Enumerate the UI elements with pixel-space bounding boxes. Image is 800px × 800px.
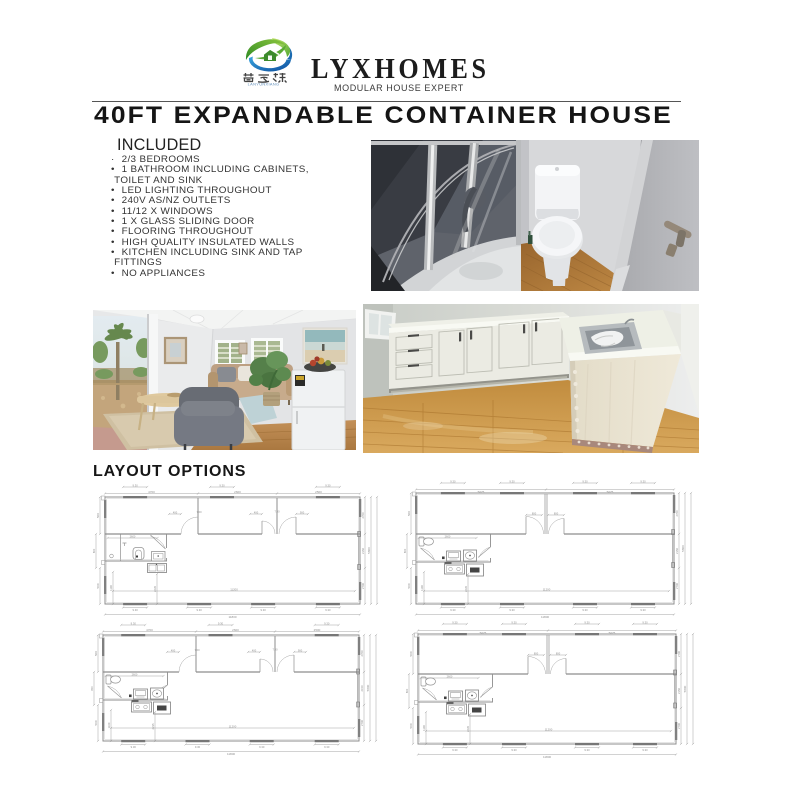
svg-text:2600: 2600 <box>447 674 453 678</box>
svg-text:2150: 2150 <box>675 548 679 554</box>
svg-text:2235: 2235 <box>464 586 468 592</box>
svg-text:11800: 11800 <box>541 615 549 618</box>
svg-text:9.30: 9.30 <box>132 608 138 612</box>
svg-text:9.30: 9.30 <box>509 479 515 483</box>
svg-text:400: 400 <box>252 648 257 652</box>
svg-text:9.30: 9.30 <box>195 745 201 749</box>
svg-text:2700: 2700 <box>361 512 365 518</box>
svg-text:2700: 2700 <box>677 651 681 657</box>
svg-text:1100: 1100 <box>422 725 426 731</box>
svg-text:800: 800 <box>554 511 559 515</box>
svg-text:5675: 5675 <box>478 490 485 494</box>
svg-text:9.30: 9.30 <box>219 483 225 487</box>
svg-text:400: 400 <box>254 510 259 514</box>
svg-text:5800: 5800 <box>683 685 687 692</box>
svg-text:9.30: 9.30 <box>325 608 331 612</box>
svg-text:9.30: 9.30 <box>642 748 648 752</box>
svg-text:11200: 11200 <box>543 587 551 591</box>
svg-text:5800: 5800 <box>681 545 685 552</box>
svg-text:2700: 2700 <box>361 583 365 589</box>
svg-text:800: 800 <box>93 548 96 553</box>
svg-text:1100: 1100 <box>109 585 113 591</box>
svg-text:500: 500 <box>96 513 100 518</box>
svg-text:800: 800 <box>534 651 539 655</box>
svg-text:2235: 2235 <box>151 723 155 729</box>
svg-text:400: 400 <box>171 648 176 652</box>
svg-text:5675: 5675 <box>607 490 614 494</box>
svg-text:11800: 11800 <box>543 755 551 759</box>
svg-text:500: 500 <box>409 651 413 656</box>
svg-text:5675: 5675 <box>609 631 616 635</box>
svg-text:9.30: 9.30 <box>131 745 137 749</box>
svg-text:5800: 5800 <box>366 684 370 691</box>
svg-text:2235: 2235 <box>466 726 470 732</box>
svg-text:9.30: 9.30 <box>324 745 330 749</box>
svg-text:2150: 2150 <box>361 548 365 554</box>
svg-text:9.30: 9.30 <box>452 748 458 752</box>
svg-text:400: 400 <box>173 510 178 514</box>
svg-text:2600: 2600 <box>130 534 136 538</box>
svg-text:7.00: 7.00 <box>274 510 280 514</box>
svg-text:9.30: 9.30 <box>196 608 202 612</box>
svg-text:2700: 2700 <box>675 510 679 516</box>
svg-text:800: 800 <box>404 548 407 553</box>
svg-text:2700: 2700 <box>360 650 364 656</box>
svg-text:800: 800 <box>532 511 537 515</box>
svg-text:9.30: 9.30 <box>642 620 648 624</box>
svg-text:2600: 2600 <box>232 628 239 632</box>
svg-text:800: 800 <box>556 651 561 655</box>
svg-text:9.30: 9.30 <box>582 608 588 612</box>
svg-text:9.30: 9.30 <box>584 620 590 624</box>
svg-text:11800: 11800 <box>228 615 236 619</box>
svg-text:5675: 5675 <box>480 631 487 635</box>
svg-text:800: 800 <box>406 688 409 693</box>
svg-text:9.30: 9.30 <box>511 620 517 624</box>
svg-text:500: 500 <box>94 720 98 725</box>
svg-text:9.30: 9.30 <box>131 621 137 625</box>
svg-text:9.30: 9.30 <box>640 479 646 483</box>
svg-text:500: 500 <box>407 511 411 516</box>
svg-text:800: 800 <box>91 686 94 691</box>
svg-text:11200: 11200 <box>230 587 238 591</box>
svg-text:9.30: 9.30 <box>582 479 588 483</box>
svg-text:2600: 2600 <box>445 534 451 538</box>
svg-text:9.30: 9.30 <box>511 748 517 752</box>
svg-text:LANYUNXIANG: LANYUNXIANG <box>248 81 280 86</box>
svg-text:900: 900 <box>300 510 305 514</box>
svg-text:2150: 2150 <box>677 688 681 694</box>
svg-text:7.00: 7.00 <box>196 510 202 514</box>
svg-text:900: 900 <box>298 648 303 652</box>
svg-text:7.00: 7.00 <box>194 648 200 652</box>
svg-text:7.00: 7.00 <box>272 648 278 652</box>
svg-text:2500: 2500 <box>314 628 321 632</box>
svg-text:9.30: 9.30 <box>218 621 224 625</box>
svg-text:9.30: 9.30 <box>584 748 590 752</box>
svg-text:500: 500 <box>94 651 98 656</box>
svg-text:500: 500 <box>407 583 411 588</box>
svg-text:11800: 11800 <box>227 752 235 756</box>
svg-text:9.30: 9.30 <box>509 608 515 612</box>
svg-text:5800: 5800 <box>367 547 371 554</box>
svg-text:2600: 2600 <box>132 672 138 676</box>
svg-text:11200: 11200 <box>229 724 237 728</box>
svg-text:9.30: 9.30 <box>450 479 456 483</box>
svg-text:2700: 2700 <box>360 720 364 726</box>
svg-text:2700: 2700 <box>677 723 681 729</box>
svg-text:1100: 1100 <box>107 722 111 728</box>
svg-text:500: 500 <box>409 723 413 728</box>
svg-text:9.30: 9.30 <box>325 483 331 487</box>
svg-text:4700: 4700 <box>146 628 153 632</box>
svg-text:2150: 2150 <box>360 685 364 691</box>
svg-text:9.30: 9.30 <box>132 483 138 487</box>
svg-text:9.30: 9.30 <box>260 608 266 612</box>
svg-text:1100: 1100 <box>420 585 424 591</box>
svg-text:2235: 2235 <box>153 586 157 592</box>
svg-text:11200: 11200 <box>545 727 553 731</box>
svg-text:4700: 4700 <box>148 490 155 494</box>
svg-text:9.30: 9.30 <box>450 608 456 612</box>
svg-text:9.30: 9.30 <box>452 620 458 624</box>
svg-text:500: 500 <box>96 583 100 588</box>
svg-text:9.30: 9.30 <box>259 745 265 749</box>
svg-text:2500: 2500 <box>315 490 322 494</box>
svg-text:9.30: 9.30 <box>324 621 330 625</box>
svg-text:2600: 2600 <box>234 490 241 494</box>
svg-text:9.30: 9.30 <box>640 608 646 612</box>
svg-text:2700: 2700 <box>675 583 679 589</box>
